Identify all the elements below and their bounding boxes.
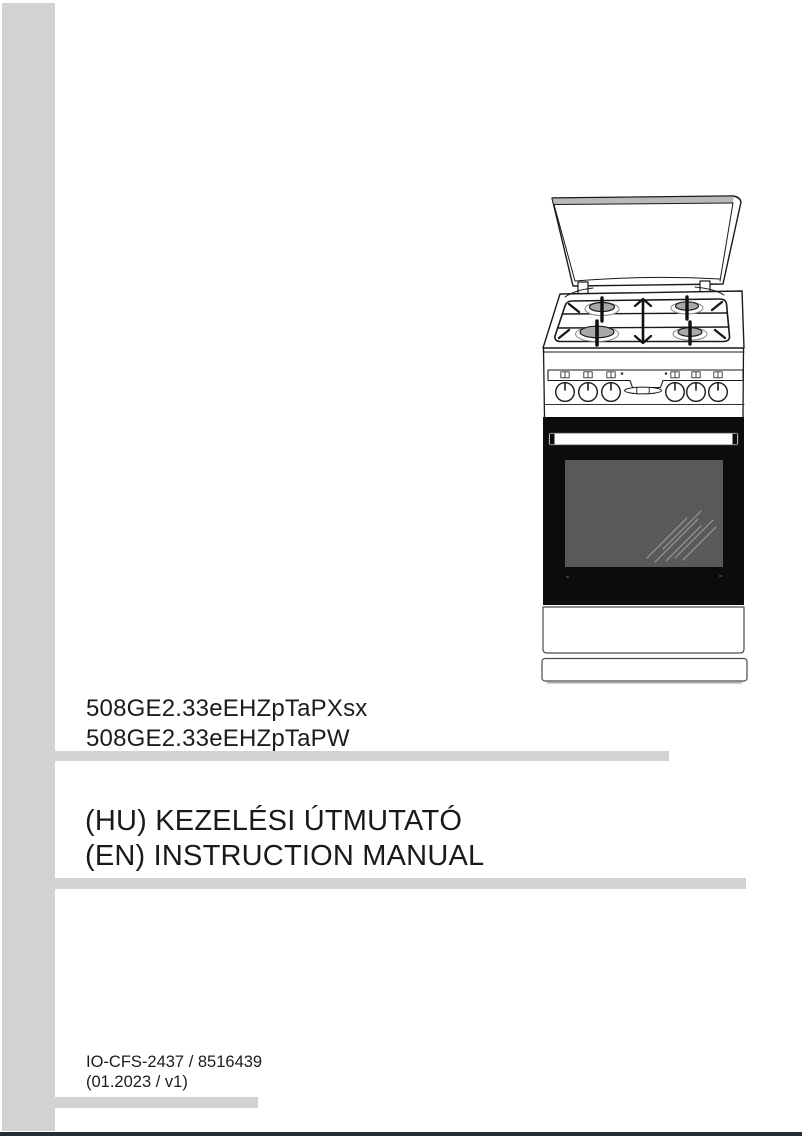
- gas-cooker-drawing: [535, 190, 760, 690]
- knob: [579, 383, 598, 402]
- storage-drawer: [543, 607, 744, 653]
- divider-bar-footer: [55, 1097, 258, 1108]
- indicator-dot: [665, 372, 668, 375]
- plinth: [542, 659, 747, 682]
- door-handle: [549, 433, 738, 445]
- knob: [687, 383, 706, 402]
- timer-display: [625, 387, 662, 394]
- title-en: (EN) INSTRUCTION MANUAL: [85, 839, 484, 874]
- knob: [602, 383, 621, 402]
- manual-title: (HU) KEZELÉSI ÚTMUTATÓ (EN) INSTRUCTION …: [85, 804, 484, 874]
- indicator-dot: [621, 372, 624, 375]
- cooker-illustration: [535, 190, 760, 690]
- oven-window: [565, 460, 723, 567]
- knob: [666, 383, 685, 402]
- lid-hinge-left: [578, 282, 588, 294]
- model-number-2: 508GE2.33eEHZpTaPW: [86, 724, 368, 754]
- manual-cover-page: 508GE2.33eEHZpTaPXsx 508GE2.33eEHZpTaPW …: [0, 0, 802, 1136]
- model-numbers: 508GE2.33eEHZpTaPXsx 508GE2.33eEHZpTaPW: [86, 694, 368, 754]
- document-code-block: IO-CFS-2437 / 8516439 (01.2023 / v1): [86, 1053, 262, 1092]
- lid: [552, 196, 741, 286]
- divider-bar-models: [55, 751, 669, 761]
- doc-version: (01.2023 / v1): [86, 1073, 262, 1093]
- model-number-1: 508GE2.33eEHZpTaPXsx: [86, 694, 368, 724]
- title-hu: (HU) KEZELÉSI ÚTMUTATÓ: [85, 804, 484, 839]
- knob: [709, 383, 728, 402]
- page-bottom-edge: [0, 1132, 802, 1136]
- divider-bar-title: [55, 878, 746, 889]
- left-accent-bar: [2, 3, 55, 1131]
- doc-code: IO-CFS-2437 / 8516439: [86, 1053, 262, 1073]
- knob: [556, 383, 575, 402]
